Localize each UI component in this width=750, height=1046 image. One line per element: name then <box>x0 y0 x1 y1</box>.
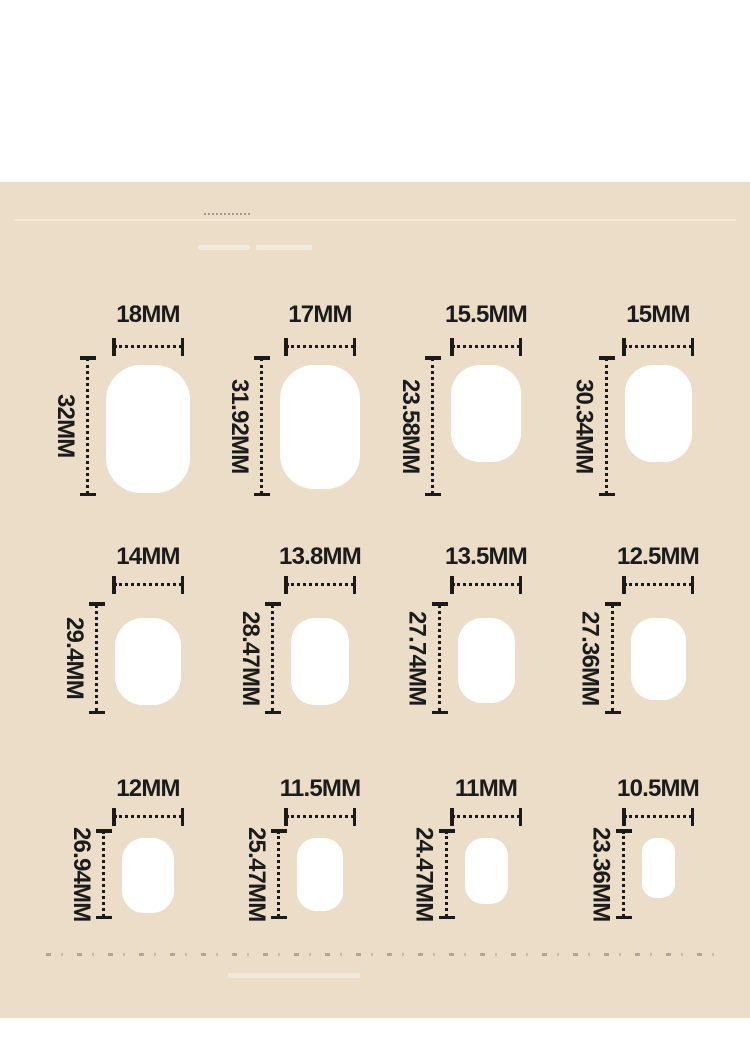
nail-tip-shape <box>297 838 343 911</box>
dimension-end-tick <box>112 576 116 594</box>
dimension-end-tick <box>112 808 116 826</box>
width-dimension-line <box>450 808 522 826</box>
dotted-line <box>624 345 692 348</box>
dimension-end-tick <box>519 338 523 356</box>
width-dimension-line <box>284 338 356 356</box>
dimension-end-tick <box>691 808 695 826</box>
width-label: 12.5MM <box>588 544 728 569</box>
width-label: 14MM <box>78 544 218 569</box>
length-dimension-line <box>425 356 441 496</box>
nail-tip-shape <box>465 838 508 904</box>
nail-tip-shape <box>291 618 349 705</box>
width-dimension-line <box>622 576 694 594</box>
length-dimension-line <box>89 602 105 714</box>
dotted-line <box>114 345 182 348</box>
length-dimension-line <box>80 356 96 496</box>
dimension-end-tick <box>425 356 441 360</box>
dimension-end-tick <box>622 338 626 356</box>
length-dimension-line <box>605 602 621 714</box>
top-white-band <box>0 0 750 182</box>
dimension-end-tick <box>181 808 185 826</box>
faded-mark <box>228 973 360 978</box>
width-label: 13.8MM <box>250 544 390 569</box>
length-label: 29.4MM <box>57 594 87 722</box>
width-label: 15.5MM <box>416 302 556 327</box>
length-label: 23.36MM <box>584 821 614 927</box>
dimension-end-tick <box>284 808 288 826</box>
length-label: 31.92MM <box>222 348 252 504</box>
faded-divider-line <box>14 219 736 221</box>
width-label: 11MM <box>416 776 556 801</box>
dimension-end-tick <box>622 808 626 826</box>
faded-text-remnant <box>204 213 250 215</box>
dimension-end-tick <box>605 602 621 606</box>
dotted-line <box>260 358 263 494</box>
dimension-end-tick <box>284 576 288 594</box>
dimension-end-tick <box>691 338 695 356</box>
dimension-end-tick <box>353 808 357 826</box>
dimension-end-tick <box>265 711 281 715</box>
length-label: 25.47MM <box>239 821 269 927</box>
dimension-end-tick <box>599 356 615 360</box>
dimension-end-tick <box>599 493 615 497</box>
dotted-line <box>452 345 520 348</box>
length-label: 23.58MM <box>393 348 423 504</box>
width-label: 10.5MM <box>588 776 728 801</box>
dimension-end-tick <box>254 356 270 360</box>
nail-tip-shape <box>122 838 174 913</box>
width-dimension-line <box>450 576 522 594</box>
dimension-end-tick <box>450 576 454 594</box>
faded-footnote-text <box>46 953 718 956</box>
dimension-end-tick <box>181 338 185 356</box>
dimension-end-tick <box>80 356 96 360</box>
length-label: 28.47MM <box>233 594 263 722</box>
width-dimension-line <box>284 808 356 826</box>
nail-tip-shape <box>642 838 675 898</box>
dimension-end-tick <box>96 829 112 833</box>
nail-tip-shape <box>631 618 686 700</box>
dimension-end-tick <box>89 711 105 715</box>
width-dimension-line <box>622 338 694 356</box>
width-label: 11.5MM <box>250 776 390 801</box>
dimension-end-tick <box>271 916 287 920</box>
dotted-line <box>277 831 280 917</box>
dotted-line <box>286 345 354 348</box>
width-label: 15MM <box>588 302 728 327</box>
bottom-white-band <box>0 1018 750 1046</box>
nail-tip-shape <box>106 365 190 493</box>
dotted-line <box>452 815 520 818</box>
length-dimension-line <box>254 356 270 496</box>
dotted-line <box>431 358 434 494</box>
dotted-line <box>624 583 692 586</box>
nail-tip-shape <box>625 365 692 462</box>
length-label: 26.94MM <box>64 821 94 927</box>
length-dimension-line <box>599 356 615 496</box>
dimension-end-tick <box>353 338 357 356</box>
dimension-end-tick <box>265 602 281 606</box>
dotted-line <box>271 604 274 712</box>
dotted-line <box>438 604 441 712</box>
width-dimension-line <box>112 338 184 356</box>
length-dimension-line <box>96 829 112 919</box>
nail-tip-shape <box>451 365 521 462</box>
dimension-end-tick <box>450 338 454 356</box>
dimension-end-tick <box>622 576 626 594</box>
dimension-end-tick <box>691 576 695 594</box>
width-label: 18MM <box>78 302 218 327</box>
dotted-line <box>611 604 614 712</box>
dimension-end-tick <box>450 808 454 826</box>
dotted-line <box>452 583 520 586</box>
nail-tip-shape <box>115 618 181 705</box>
width-label: 17MM <box>250 302 390 327</box>
width-label: 13.5MM <box>416 544 556 569</box>
width-dimension-line <box>622 808 694 826</box>
faded-mark <box>256 245 312 250</box>
width-dimension-line <box>112 808 184 826</box>
dotted-line <box>102 831 105 917</box>
dotted-line <box>624 815 692 818</box>
dimension-end-tick <box>353 576 357 594</box>
dimension-end-tick <box>80 493 96 497</box>
length-label: 24.47MM <box>407 821 437 927</box>
length-dimension-line <box>432 602 448 714</box>
dimension-end-tick <box>616 829 632 833</box>
dotted-line <box>95 604 98 712</box>
length-label: 27.36MM <box>573 594 603 722</box>
dimension-end-tick <box>112 338 116 356</box>
dimension-end-tick <box>89 602 105 606</box>
dimension-end-tick <box>181 576 185 594</box>
dimension-end-tick <box>605 711 621 715</box>
dimension-end-tick <box>519 808 523 826</box>
dimension-end-tick <box>616 916 632 920</box>
dimension-end-tick <box>271 829 287 833</box>
dimension-end-tick <box>519 576 523 594</box>
length-dimension-line <box>616 829 632 919</box>
dotted-line <box>622 831 625 917</box>
dimension-end-tick <box>96 916 112 920</box>
dotted-line <box>286 583 354 586</box>
dimension-end-tick <box>254 493 270 497</box>
dimension-end-tick <box>284 338 288 356</box>
dotted-line <box>286 815 354 818</box>
width-label: 12MM <box>78 776 218 801</box>
width-dimension-line <box>112 576 184 594</box>
dimension-end-tick <box>439 916 455 920</box>
dotted-line <box>86 358 89 494</box>
dotted-line <box>445 831 448 917</box>
length-dimension-line <box>265 602 281 714</box>
dimension-end-tick <box>432 711 448 715</box>
width-dimension-line <box>284 576 356 594</box>
dimension-end-tick <box>439 829 455 833</box>
dotted-line <box>605 358 608 494</box>
faded-mark <box>198 245 250 250</box>
dotted-line <box>114 815 182 818</box>
nail-tip-shape <box>458 618 515 703</box>
length-label: 32MM <box>48 348 78 504</box>
width-dimension-line <box>450 338 522 356</box>
dotted-line <box>114 583 182 586</box>
nail-size-chart-image: 18MM32MM17MM31.92MM15.5MM23.58MM15MM30.3… <box>0 0 750 1046</box>
length-label: 27.74MM <box>400 594 430 722</box>
dimension-end-tick <box>432 602 448 606</box>
length-label: 30.34MM <box>567 348 597 504</box>
dimension-end-tick <box>425 493 441 497</box>
length-dimension-line <box>271 829 287 919</box>
nail-tip-shape <box>280 365 360 489</box>
length-dimension-line <box>439 829 455 919</box>
